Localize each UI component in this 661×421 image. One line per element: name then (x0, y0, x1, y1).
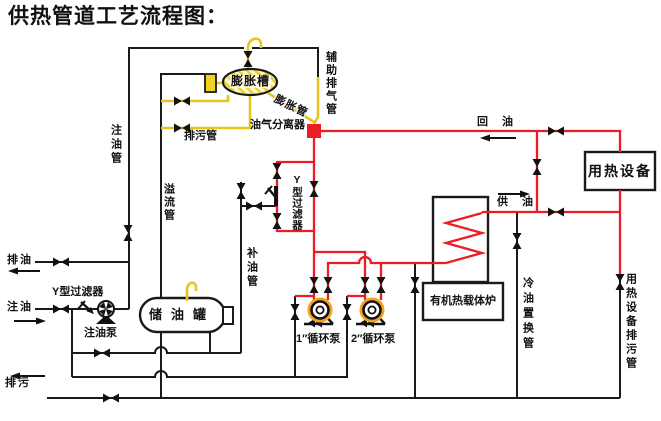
valve-icon (53, 305, 69, 314)
valve-icon (343, 304, 352, 320)
pump2-label: 2″循环泵 (351, 334, 395, 346)
circulation-pump-2-icon (356, 299, 385, 328)
valve-icon (310, 181, 319, 197)
circulation-pump-1-icon (304, 299, 333, 328)
page-title: 供热管道工艺流程图： (8, 6, 228, 28)
valve-icon (310, 277, 319, 293)
y-filter-fill-label: Y型过滤器 (52, 287, 103, 299)
fill-pipe-label: 注油管 (109, 124, 121, 166)
valve-icon (174, 97, 190, 106)
valve-icon (273, 213, 282, 229)
separator-label: 油气分离器 (250, 120, 305, 132)
valve-icon (513, 233, 522, 249)
aux-exhaust-pipe-label: 辅助排气管 (324, 51, 336, 116)
return-oil-arrow (480, 135, 490, 142)
valve-icon (53, 258, 69, 267)
drain-oil-arrow (8, 268, 18, 275)
fill-pump-label: 注油泵 (84, 328, 117, 340)
valve-icon (377, 277, 386, 293)
drain-oil-label: 排油 (7, 255, 33, 267)
y-strainer-icon (265, 186, 277, 206)
valve-icon (246, 202, 262, 211)
expansion-tank-label: 膨胀槽 (230, 75, 271, 88)
valve-icon (94, 349, 110, 358)
overflow-pipe-label: 溢流管 (162, 183, 174, 222)
blowdown-pipe-label: 排污管 (184, 131, 217, 143)
valve-icon (273, 163, 282, 179)
blowdown-label: 排污 (5, 378, 31, 390)
storage-tank-label: 储油罐 (149, 308, 215, 322)
makeup-pipe-label: 补油管 (245, 247, 257, 289)
cold-oil-pipe-label: 冷油置换管 (521, 277, 533, 352)
valve-icon (103, 394, 119, 403)
fill-oil-label: 注油 (7, 302, 33, 314)
valve-icon (548, 127, 564, 136)
oil-gas-separator-shape (307, 124, 321, 138)
furnace-label: 有机热载体炉 (423, 283, 503, 320)
fill-oil-arrow (36, 318, 46, 325)
equipment-shapes (140, 152, 655, 332)
valve-icon (324, 277, 333, 293)
valve-icon (291, 304, 300, 320)
valve-icon (244, 51, 253, 67)
valve-icon (533, 159, 542, 175)
y-filter-main-label: Y型过滤器 (291, 174, 302, 231)
fill-pump-icon (96, 301, 116, 324)
supply-oil-label: 供油 (497, 197, 547, 209)
heat-equipment-label: 用热设备 (585, 152, 655, 190)
valve-icon (411, 277, 420, 293)
valves (53, 51, 625, 403)
valve-icon (548, 208, 564, 217)
y-strainer-icon (78, 301, 94, 314)
valve-icon (361, 277, 370, 293)
valve-icon (124, 225, 133, 241)
return-oil-label: 回油 (477, 117, 527, 129)
tank-fitting (223, 307, 233, 324)
level-gauge-box (205, 74, 216, 92)
equipment-blowdown-pipe-label: 用热设备排污管 (624, 273, 636, 371)
pump1-label: 1″循环泵 (296, 334, 340, 346)
valve-icon (237, 183, 246, 199)
process-flow-diagram: 供热管道工艺流程图： 膨胀槽 辅助排气管 膨胀管 油气分离器 排污管 注油管 溢… (0, 0, 661, 421)
